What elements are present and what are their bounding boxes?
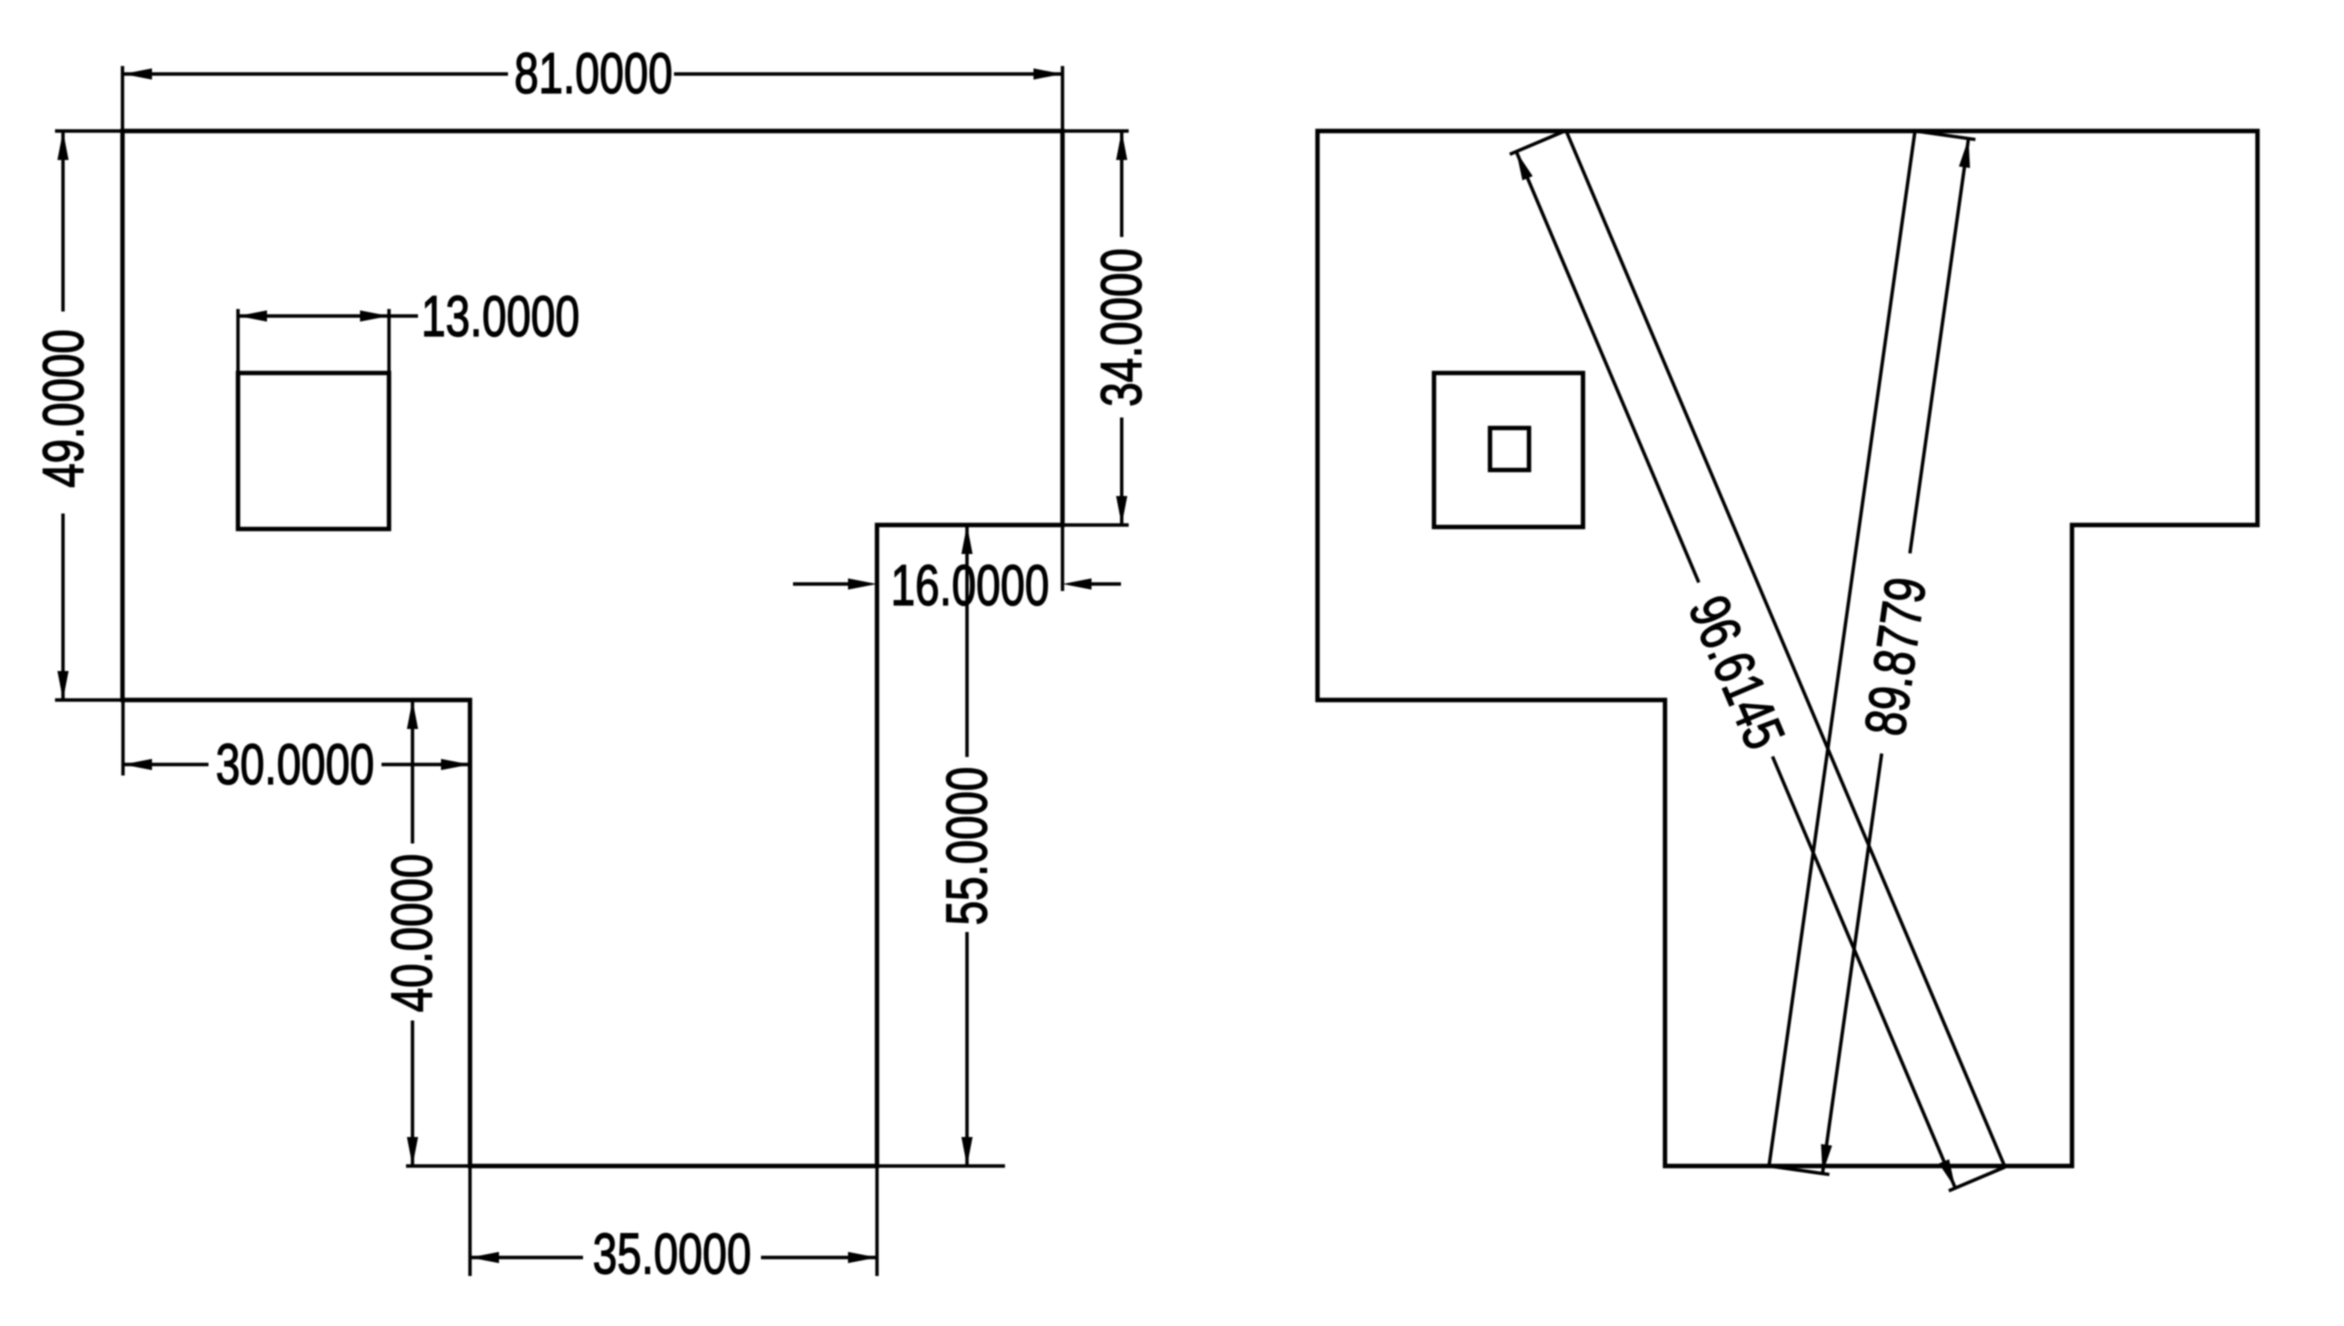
svg-text:13.0000: 13.0000: [421, 284, 579, 348]
svg-text:35.0000: 35.0000: [593, 1222, 751, 1286]
svg-text:34.0000: 34.0000: [1089, 248, 1153, 406]
svg-text:49.0000: 49.0000: [31, 329, 95, 487]
svg-text:55.0000: 55.0000: [935, 767, 999, 925]
svg-text:81.0000: 81.0000: [514, 41, 672, 105]
svg-text:30.0000: 30.0000: [216, 732, 374, 796]
svg-text:16.0000: 16.0000: [891, 553, 1049, 617]
svg-text:40.0000: 40.0000: [380, 854, 444, 1012]
